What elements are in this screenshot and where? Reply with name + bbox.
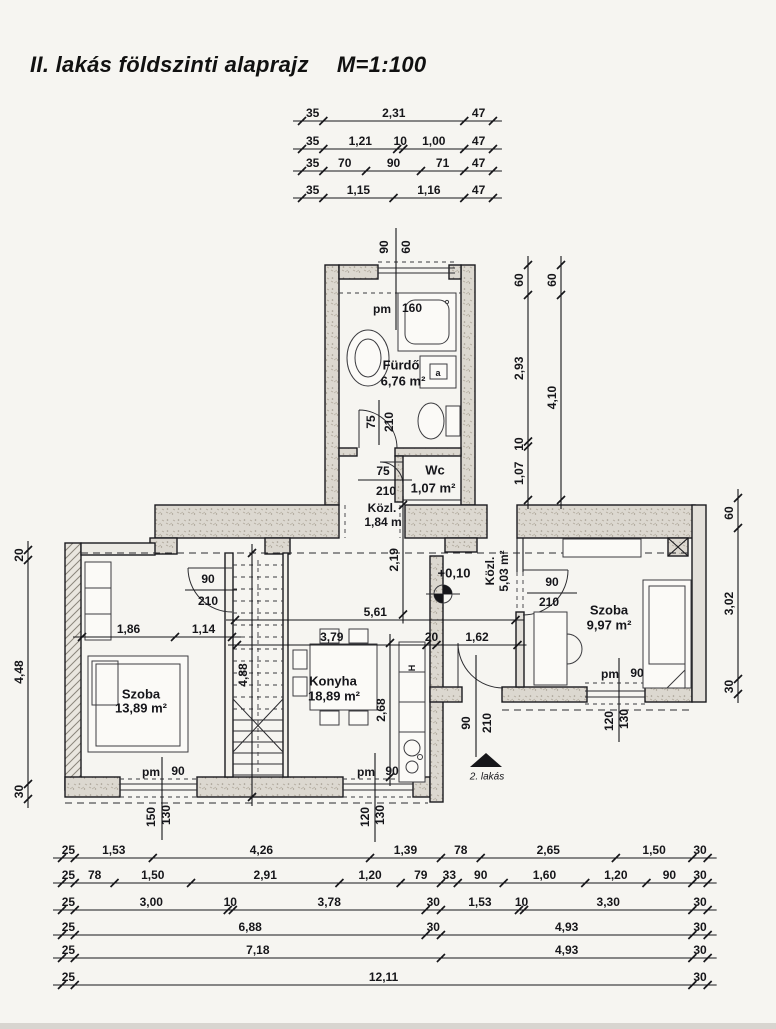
door-mark-kozl-szoba2-height: 210 xyxy=(539,595,559,609)
svg-text:1,20: 1,20 xyxy=(358,868,382,882)
scale-text: M=1:100 xyxy=(337,52,427,77)
svg-text:70: 70 xyxy=(338,156,352,170)
room-label-wc-name: Wc xyxy=(425,463,445,478)
svg-text:30: 30 xyxy=(693,920,707,934)
window-mark-furdo-a: 90 xyxy=(377,240,391,253)
desk-and-chair xyxy=(534,612,582,685)
door-mark-hall-szoba1-width: 90 xyxy=(201,572,214,586)
window-mark-szoba2-prefix: pm xyxy=(601,667,619,681)
door-mark-furdo-width: 75 xyxy=(364,415,378,428)
toilet xyxy=(418,403,460,439)
svg-text:4,48: 4,48 xyxy=(12,660,26,684)
kitchen-counter xyxy=(399,642,425,782)
svg-text:10: 10 xyxy=(224,895,238,909)
window-mark-konyha-value: 90 xyxy=(385,764,398,778)
dim-chain-top-3: 3570907147 xyxy=(293,156,502,175)
svg-text:3,30: 3,30 xyxy=(597,895,621,909)
room-label-szoba2-name: Szoba xyxy=(590,603,628,618)
svg-text:2,93: 2,93 xyxy=(512,356,526,380)
dim-chain-top-4: 351,151,1647 xyxy=(293,183,502,202)
room-label-szoba1-area: 13,89 m² xyxy=(115,701,167,716)
window-mark-konyha-prefix: pm xyxy=(357,765,375,779)
dim-chain-bath-outer: 604,10 xyxy=(545,256,565,509)
svg-text:4,10: 4,10 xyxy=(545,385,559,409)
svg-text:47: 47 xyxy=(472,183,486,197)
svg-text:4,26: 4,26 xyxy=(250,843,274,857)
dim-chain-bottom-3: 253,00103,78301,53103,3030 xyxy=(53,895,717,914)
window-mark-szoba1-value: 90 xyxy=(171,764,184,778)
entry-direction-label: 2. lakás xyxy=(470,772,504,783)
svg-text:1,53: 1,53 xyxy=(102,843,126,857)
svg-text:7,18: 7,18 xyxy=(246,943,270,957)
dim-chain-bottom-5: 257,184,9330 xyxy=(53,943,717,962)
svg-text:30: 30 xyxy=(693,868,707,882)
svg-text:78: 78 xyxy=(454,843,468,857)
door-mark-wc-height: 210 xyxy=(376,484,396,498)
fixture-letter-h: H xyxy=(407,665,417,672)
svg-text:47: 47 xyxy=(472,106,486,120)
dim-chain-bottom-4: 256,88304,9330 xyxy=(53,920,717,939)
drawing-title: II. lakás földszinti alaprajzM=1:100 xyxy=(30,52,426,78)
dim-chain-left: 204,4830 xyxy=(12,541,32,808)
svg-text:2,31: 2,31 xyxy=(382,106,406,120)
dim-chain-top-2: 351,21101,0047 xyxy=(293,134,502,153)
svg-text:3,79: 3,79 xyxy=(320,630,344,644)
svg-text:5,61: 5,61 xyxy=(364,605,388,619)
svg-text:30: 30 xyxy=(427,895,441,909)
svg-text:20: 20 xyxy=(12,548,26,562)
svg-text:35: 35 xyxy=(306,134,320,148)
window-mark-szoba1-b: 130 xyxy=(159,805,173,825)
door-mark-entry-width: 90 xyxy=(459,716,473,729)
floorplan-page: 352,3147 351,21101,0047 3570907147 351,1… xyxy=(0,0,776,1029)
svg-text:90: 90 xyxy=(387,156,401,170)
dim-chain-mid-upper: 5,61 xyxy=(226,605,525,624)
door-mark-wc-width: 75 xyxy=(376,464,389,478)
svg-text:25: 25 xyxy=(62,943,76,957)
door-mark-hall-szoba1-height: 210 xyxy=(198,594,218,608)
room-label-furdo-area: 6,76 m² xyxy=(381,374,426,389)
room-label-kozl2-name: Közl. xyxy=(483,550,497,591)
svg-text:3,78: 3,78 xyxy=(318,895,342,909)
svg-text:1,16: 1,16 xyxy=(417,183,441,197)
svg-text:60: 60 xyxy=(722,506,736,520)
door-mark-entry-height: 210 xyxy=(480,713,494,733)
room-label-szoba2-area: 9,97 m² xyxy=(587,618,632,633)
dim-chain-bath-inner: 602,93101,07 xyxy=(512,256,532,509)
svg-text:4,93: 4,93 xyxy=(555,920,579,934)
svg-text:35: 35 xyxy=(306,183,320,197)
room-label-furdo-name: Fürdő xyxy=(383,358,420,373)
svg-text:1,15: 1,15 xyxy=(347,183,371,197)
window-mark-szoba1-a: 150 xyxy=(144,807,158,827)
svg-text:30: 30 xyxy=(693,895,707,909)
room-label-kozl1-area: 1,84 m xyxy=(364,515,401,529)
svg-text:1,60: 1,60 xyxy=(533,868,557,882)
svg-text:30: 30 xyxy=(693,970,707,984)
window-mark-konyha-a: 120 xyxy=(358,807,372,827)
svg-text:10: 10 xyxy=(394,134,408,148)
svg-text:1,62: 1,62 xyxy=(465,630,489,644)
svg-text:25: 25 xyxy=(62,920,76,934)
shelf xyxy=(563,539,641,557)
level-mark-label: +0,10 xyxy=(438,566,471,581)
dim-chain-bottom-6: 2512,1130 xyxy=(53,970,717,989)
window-mark-furdo-b: 60 xyxy=(399,240,413,253)
svg-text:12,11: 12,11 xyxy=(369,970,399,984)
fixture-letter-a: a xyxy=(435,368,440,378)
svg-text:25: 25 xyxy=(62,895,76,909)
svg-text:25: 25 xyxy=(62,843,76,857)
svg-text:30: 30 xyxy=(427,920,441,934)
room-label-wc-area: 1,07 m² xyxy=(411,481,456,496)
title-text: II. lakás földszinti alaprajz xyxy=(30,52,309,77)
svg-text:1,07: 1,07 xyxy=(512,461,526,485)
svg-text:3,02: 3,02 xyxy=(722,591,736,615)
single-bed xyxy=(643,580,691,688)
room-label-kozl1-name: Közl. xyxy=(368,501,397,515)
dim-chain-top-1: 352,3147 xyxy=(293,106,502,125)
window-mark-furdo-value: 160 xyxy=(402,301,422,315)
room-label-konyha-name: Konyha xyxy=(309,674,357,689)
svg-text:4,93: 4,93 xyxy=(555,943,579,957)
svg-text:47: 47 xyxy=(472,156,486,170)
svg-text:2,91: 2,91 xyxy=(254,868,278,882)
svg-text:10: 10 xyxy=(515,895,529,909)
svg-text:1,14: 1,14 xyxy=(192,622,216,636)
svg-text:60: 60 xyxy=(512,273,526,287)
svg-text:3,00: 3,00 xyxy=(140,895,164,909)
svg-text:35: 35 xyxy=(306,156,320,170)
svg-text:30: 30 xyxy=(722,680,736,694)
room-label-kozl2: Közl. 5,03 m² xyxy=(483,550,511,591)
svg-text:2,65: 2,65 xyxy=(537,843,561,857)
svg-text:30: 30 xyxy=(693,943,707,957)
dim-chain-bottom-2: 25781,502,911,207933901,601,209030 xyxy=(53,868,717,887)
svg-text:1,86: 1,86 xyxy=(117,622,141,636)
window-mark-szoba2-a: 120 xyxy=(602,711,616,731)
svg-text:90: 90 xyxy=(474,868,488,882)
svg-text:33: 33 xyxy=(443,868,457,882)
dim-chain-stairs-height: 4,88 xyxy=(236,544,256,806)
svg-text:71: 71 xyxy=(436,156,450,170)
door-mark-furdo-height: 210 xyxy=(382,412,396,432)
svg-text:1,53: 1,53 xyxy=(468,895,492,909)
door-mark-kozl-szoba2-width: 90 xyxy=(545,575,558,589)
svg-text:2,68: 2,68 xyxy=(374,698,388,722)
svg-text:90: 90 xyxy=(663,868,677,882)
svg-text:1,20: 1,20 xyxy=(604,868,628,882)
svg-text:1,39: 1,39 xyxy=(394,843,418,857)
door-symbols xyxy=(188,410,568,688)
svg-text:35: 35 xyxy=(306,106,320,120)
window-mark-szoba1-prefix: pm xyxy=(142,765,160,779)
wardrobe xyxy=(85,562,111,640)
room-label-szoba1-name: Szoba xyxy=(122,687,160,702)
entry-arrow-icon xyxy=(470,753,502,767)
svg-text:6,88: 6,88 xyxy=(239,920,263,934)
window-mark-furdo-prefix: pm xyxy=(373,302,391,316)
svg-text:79: 79 xyxy=(414,868,428,882)
svg-text:1,21: 1,21 xyxy=(349,134,373,148)
window-mark-szoba2-value: 90 xyxy=(630,666,643,680)
svg-text:30: 30 xyxy=(693,843,707,857)
window-mark-szoba2-b: 130 xyxy=(617,709,631,729)
room-label-konyha-area: 18,89 m² xyxy=(308,689,360,704)
svg-text:25: 25 xyxy=(62,970,76,984)
svg-text:1,50: 1,50 xyxy=(141,868,165,882)
dim-chain-right: 603,0230 xyxy=(722,489,742,703)
svg-text:78: 78 xyxy=(88,868,102,882)
svg-text:47: 47 xyxy=(472,134,486,148)
svg-text:1,50: 1,50 xyxy=(642,843,666,857)
room-label-kozl2-area: 5,03 m² xyxy=(497,550,511,591)
svg-text:25: 25 xyxy=(62,868,76,882)
svg-text:2,19: 2,19 xyxy=(387,548,401,572)
svg-text:30: 30 xyxy=(12,785,26,799)
svg-text:10: 10 xyxy=(512,437,526,451)
svg-text:60: 60 xyxy=(545,273,559,287)
svg-text:1,00: 1,00 xyxy=(422,134,446,148)
dim-chain-bottom-1: 251,534,261,39782,651,5030 xyxy=(53,843,717,862)
window-mark-konyha-b: 130 xyxy=(373,805,387,825)
svg-text:4,88: 4,88 xyxy=(236,663,250,687)
svg-text:20: 20 xyxy=(425,630,439,644)
